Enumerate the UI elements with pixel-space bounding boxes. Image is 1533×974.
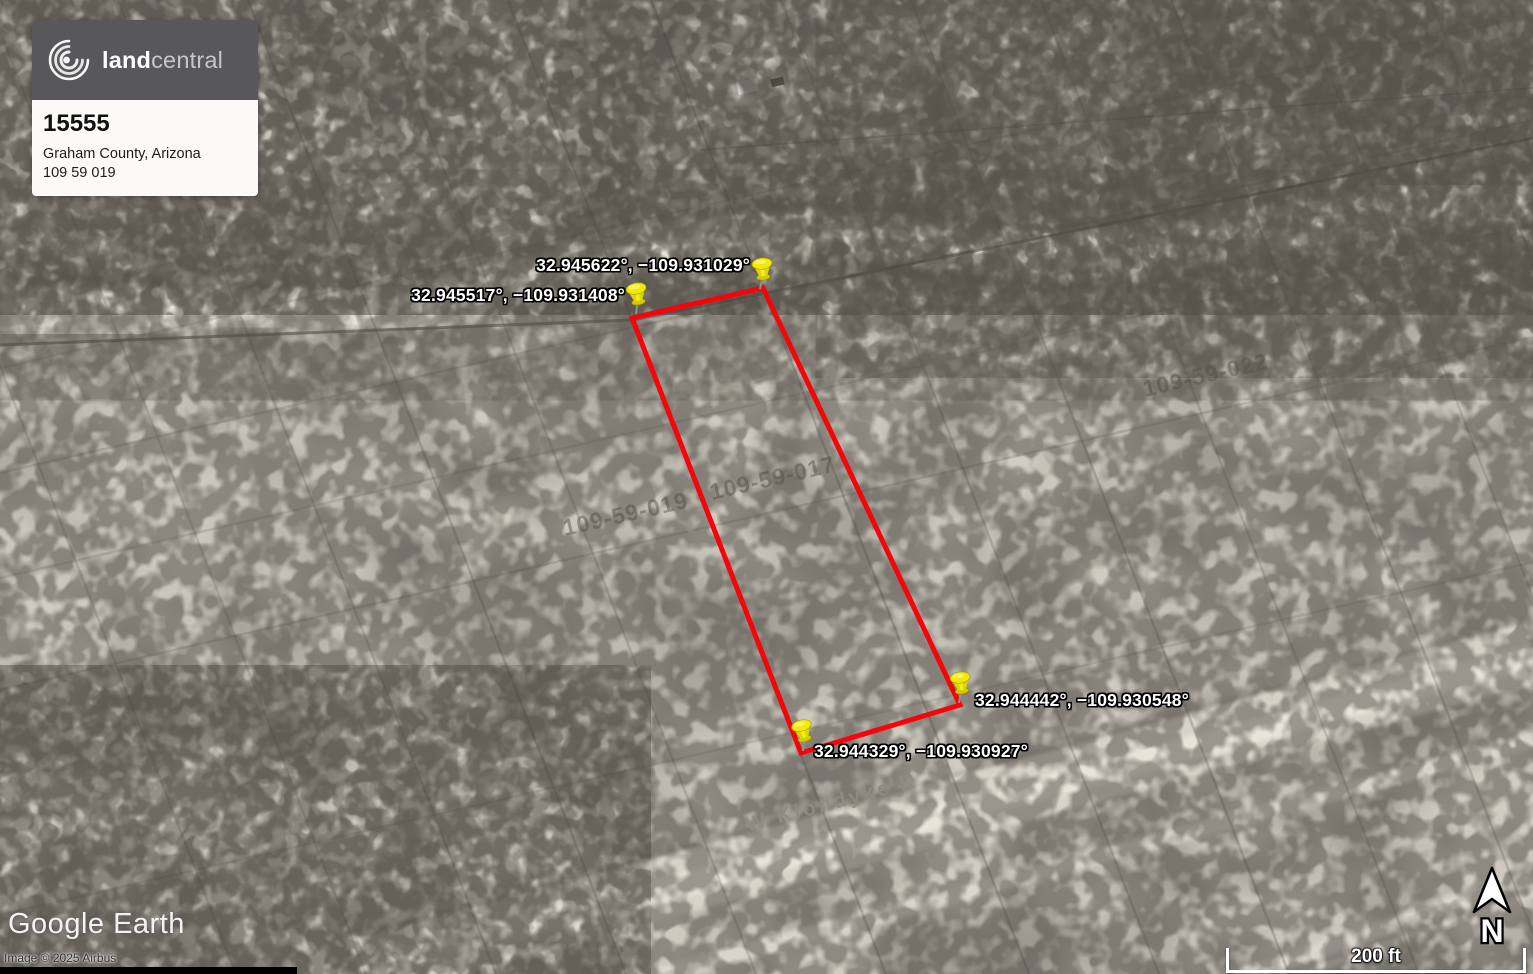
north-arrow-glyph	[1474, 868, 1510, 912]
listing-apn: 109 59 019	[43, 164, 244, 183]
landcentral-wordmark: landcentral	[102, 47, 223, 74]
scale-bar: 200 ft	[1226, 948, 1526, 973]
north-arrow-label: N	[1480, 913, 1503, 949]
imagery-attribution: Image © 2025 Airbus	[4, 951, 116, 965]
google-earth-watermark: Google Earth	[8, 908, 185, 941]
landcentral-swirl-icon	[46, 37, 92, 83]
google-earth-viewport: 109-59-022 109-59-017 109-59-019 W Klond…	[0, 0, 1533, 974]
listing-county: Graham County, Arizona	[43, 145, 244, 164]
listing-card: landcentral 15555 Graham County, Arizona…	[32, 20, 258, 196]
lot-number: 15555	[43, 110, 244, 138]
pin-label-se: 32.944442°, −109.930548°	[975, 690, 1189, 711]
wordmark-central: central	[151, 47, 223, 73]
bottom-black-strip	[0, 967, 297, 974]
parcel-boundary[interactable]	[632, 288, 960, 753]
pin-label-ne: 32.945622°, −109.931029°	[536, 255, 750, 276]
map-pin-nw[interactable]	[625, 281, 650, 315]
map-pin-ne[interactable]	[751, 257, 774, 290]
listing-card-body: 15555 Graham County, Arizona 109 59 019	[32, 100, 258, 196]
landcentral-header: landcentral	[32, 20, 258, 100]
north-arrow: N	[1462, 864, 1522, 950]
pin-label-sw: 32.944329°, −109.930927°	[814, 741, 1028, 762]
wordmark-land: land	[102, 47, 151, 73]
pin-label-nw: 32.945517°, −109.931408°	[411, 285, 625, 306]
scale-bar-label: 200 ft	[1351, 946, 1401, 968]
